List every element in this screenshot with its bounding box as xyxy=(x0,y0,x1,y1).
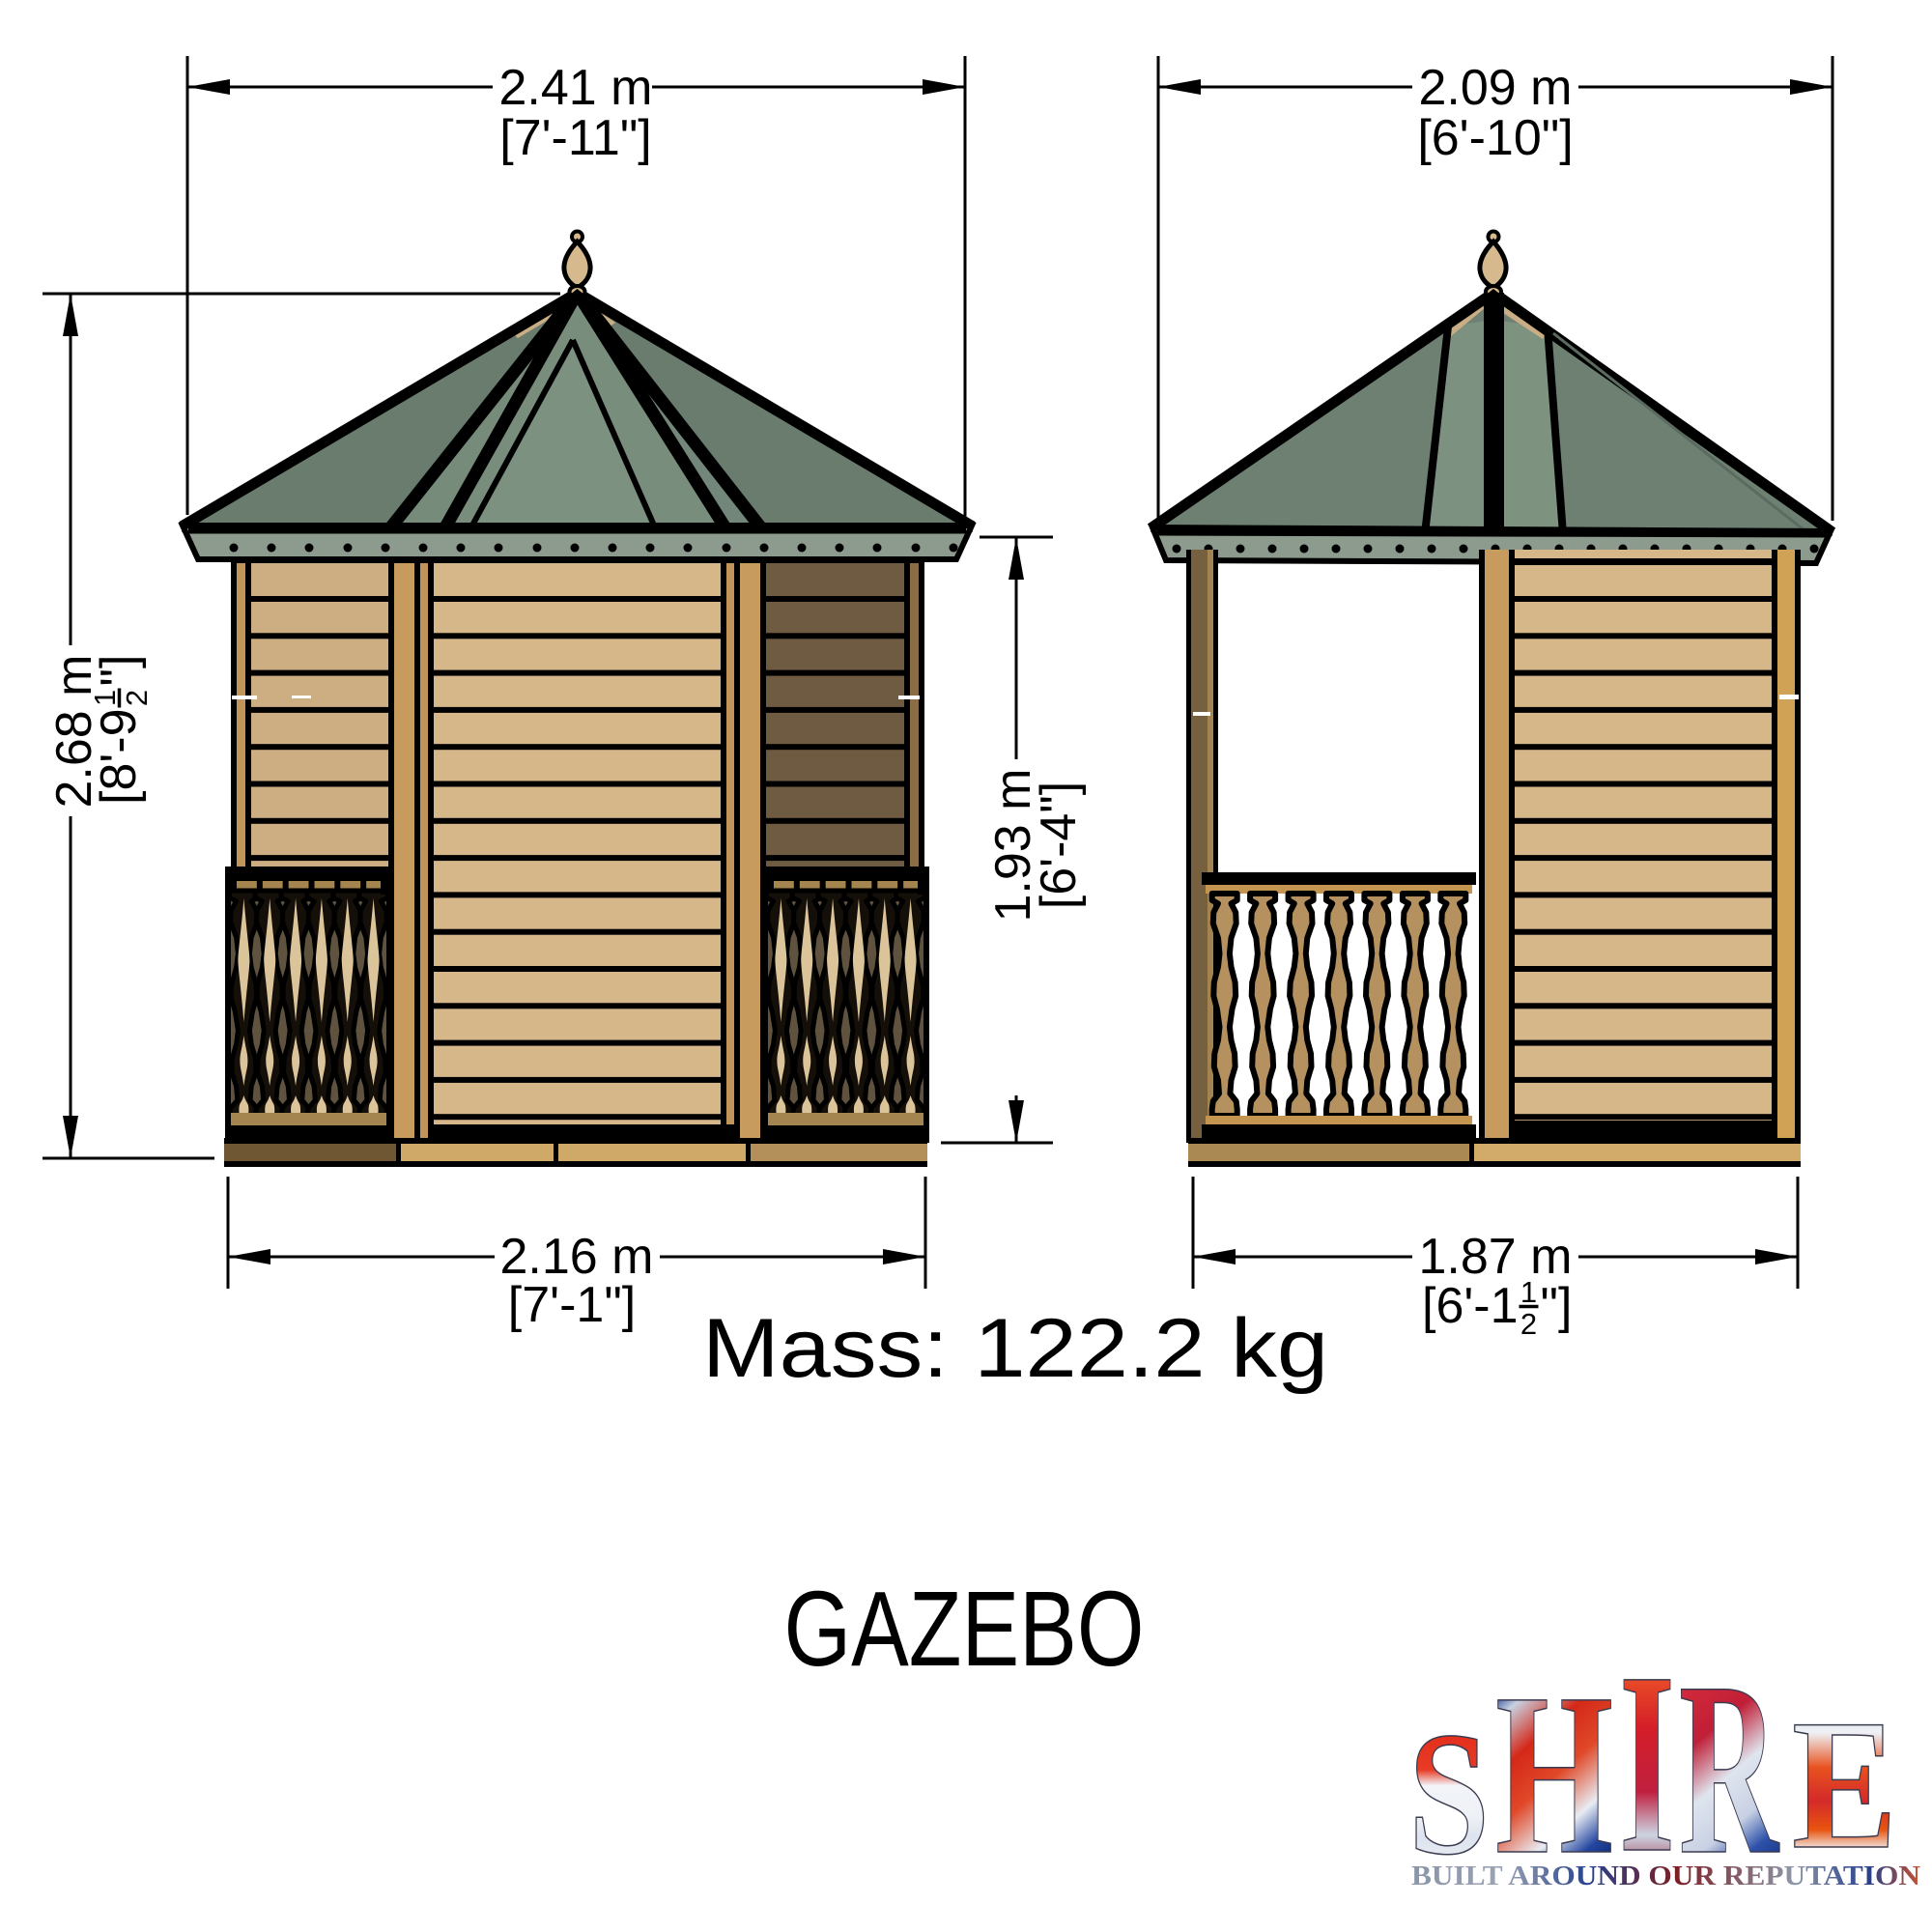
svg-text:[6'-1: [6'-1 xyxy=(1422,1278,1519,1334)
svg-text:1: 1 xyxy=(88,690,122,706)
svg-text:[7'-11"]: [7'-11"] xyxy=(499,110,652,166)
svg-text:BUILT AROUND OUR REPUTATION: BUILT AROUND OUR REPUTATION xyxy=(1411,1861,1920,1891)
svg-text:2: 2 xyxy=(1520,1307,1537,1341)
svg-text:2: 2 xyxy=(120,690,154,706)
svg-text:"]: "] xyxy=(91,655,147,687)
svg-text:[6'-10"]: [6'-10"] xyxy=(1417,110,1573,166)
svg-text:2.09 m: 2.09 m xyxy=(1419,60,1573,116)
svg-text:"]: "] xyxy=(1541,1278,1573,1334)
svg-text:1.87 m: 1.87 m xyxy=(1419,1229,1573,1285)
svg-text:[8'-9: [8'-9 xyxy=(91,708,147,805)
svg-text:1: 1 xyxy=(1520,1275,1537,1309)
svg-text:Mass: 122.2 kg: Mass: 122.2 kg xyxy=(702,1302,1328,1395)
svg-text:GAZEBO: GAZEBO xyxy=(784,1570,1145,1689)
svg-text:E: E xyxy=(1792,1681,1897,1888)
svg-text:[7'-1"]: [7'-1"] xyxy=(508,1277,636,1333)
svg-text:2.41 m: 2.41 m xyxy=(499,60,653,116)
svg-text:[6'-4"]: [6'-4"] xyxy=(1031,781,1087,909)
